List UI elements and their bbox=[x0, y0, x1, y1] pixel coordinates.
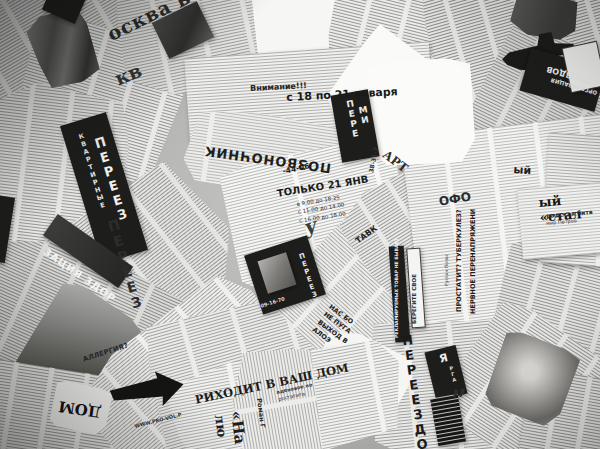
author-text: Руслан Полос bbox=[444, 254, 449, 286]
nervnoe-headline: НЕРВНОЕ ПЕРЕНАПРЯЖЕНИ bbox=[470, 209, 477, 314]
na-big: «На bbox=[227, 410, 248, 445]
yi-fragment: ый bbox=[513, 164, 531, 178]
reklam-text: РЕКЛАМИРУЕМЫХ ТОВАР НЕ БЫВАЕТ bbox=[394, 238, 399, 338]
prostatit-headline: ПРОСТАТИТ? ТУБЕРКУЛЕЗ? bbox=[456, 210, 463, 312]
newspaper-collage: осква вквВнимание!!!с 18 по 21 январяПОЗ… bbox=[0, 0, 600, 449]
beregite-text: БЕРЕГИТЕ СВОЕ bbox=[411, 274, 417, 324]
lyu-big: лю bbox=[211, 414, 229, 438]
